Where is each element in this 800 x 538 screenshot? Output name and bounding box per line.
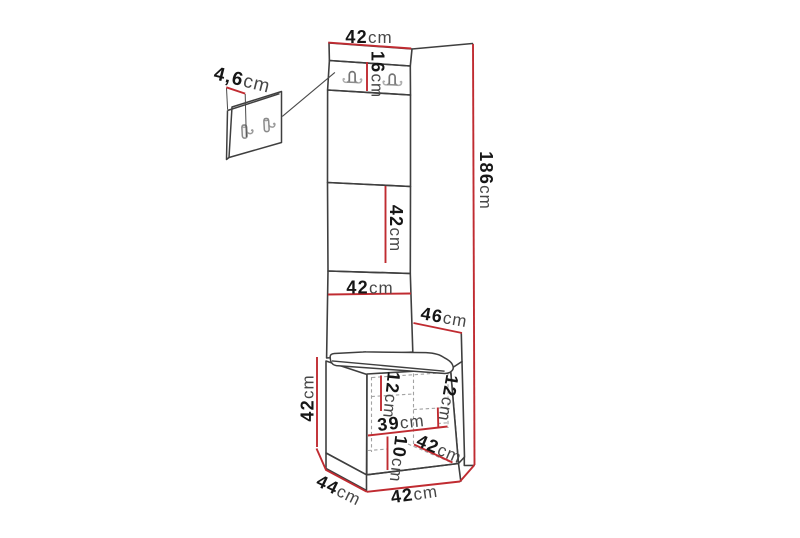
svg-text:186cm: 186cm xyxy=(476,151,496,210)
svg-text:42cm: 42cm xyxy=(346,278,393,298)
svg-text:42cm: 42cm xyxy=(386,205,406,252)
svg-text:42cm: 42cm xyxy=(298,374,318,421)
svg-text:16cm: 16cm xyxy=(368,51,388,98)
svg-text:42cm: 42cm xyxy=(345,27,392,47)
